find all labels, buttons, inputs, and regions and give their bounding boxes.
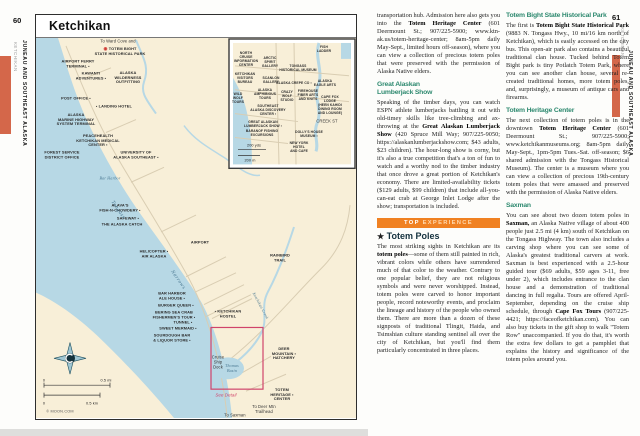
body-paragraph: transportation hub. Admission here also …	[377, 12, 500, 76]
see-detail-label: See Detail	[215, 392, 236, 397]
map-label: BARANOF FISHING EXCURSIONS	[246, 130, 278, 138]
ketchikan-map: Ketchikan	[35, 14, 357, 420]
map-label: KETCHIKAN VISITORS BUREAU	[235, 73, 255, 85]
map-label: GREAT ALASKAN LUMBERJACK SHOW ▪	[244, 121, 282, 129]
map-label: FISH LADDER	[317, 46, 331, 54]
map-label: CAPE FOX LODGE (HEEN KAHIDI DINING ROOM …	[318, 96, 342, 116]
sidebar-chapter-left: JUNEAU AND SOUTHEAST ALASKA	[21, 40, 27, 146]
to-deer-mtn-label: To Deer Mtn Trailhead	[252, 405, 275, 415]
map-label: DEER MOUNTAIN ▪ HATCHERY	[272, 347, 296, 361]
map-label: BERING SEA CRAB FISHERMEN'S TOUR ▪	[153, 310, 196, 319]
map-label: 0	[43, 379, 45, 384]
map-label: POST OFFICE ▪	[61, 97, 91, 102]
page-edge-strip	[0, 429, 368, 436]
map-label: SOUTHEAST ALASKA DISCOVERY CENTER ▪	[250, 105, 285, 117]
map-label: 0.5 km	[86, 402, 98, 407]
banner-experience-text: EXPERIENCE	[420, 220, 473, 226]
top-experience-banner: TOP EXPERIENCE	[377, 218, 500, 228]
section-heading: Saxman	[506, 202, 629, 210]
to-ward-cove-label: To Ward Cove and	[100, 40, 135, 45]
tongass-narrows-label: Narrows	[169, 269, 187, 291]
map-label: THE ALASKA CATCH	[102, 223, 143, 228]
map-label: 0.5 mi	[101, 379, 112, 384]
map-label: 200 yds	[247, 144, 261, 149]
map-label: Bar Harbor	[99, 177, 120, 182]
map-label: UNIVERSITY OF ALASKA SOUTHEAST ▪	[113, 150, 158, 159]
map-label: ▪ LANDING HOTEL	[96, 105, 132, 110]
map-label: 200 m	[244, 159, 255, 164]
totem-bight-label: TOTEM BIGHT STATE HISTORICAL PARK	[95, 46, 146, 56]
body-paragraph: You can see about two dozen totem poles …	[506, 212, 629, 364]
body-paragraph: The first is Totem Bight State Historica…	[506, 22, 629, 102]
chapter-tab-left	[0, 56, 11, 134]
map-label: ALASKA MARINE HIGHWAY SYSTEM TERMINAL	[57, 113, 96, 127]
map-credit: © MOON.COM	[46, 410, 74, 415]
map-label: TONGASS HISTORICAL MUSEUM	[279, 65, 316, 73]
map-label: Thomas Basin	[225, 364, 239, 374]
map-label: SOURDOUGH BAR & LIQUOR STORE ▪	[153, 333, 191, 342]
section-heading: Totem Bight State Historical Park	[506, 12, 629, 20]
page-number-left: 60	[13, 16, 21, 25]
map-label: BURGER QUEEN ▪	[158, 304, 194, 309]
map-label: Ketchikan Creek	[251, 292, 269, 320]
map-label: KAWANTI ADVENTURES ▪	[76, 71, 106, 80]
map-label: FIREHOUSE FIBER ARTS AND KNITS	[298, 90, 319, 102]
map-label: AIRPORT FERRY TERMINAL ▪	[62, 59, 95, 68]
text-column-2: Totem Bight State Historical ParkThe fir…	[506, 12, 629, 368]
banner-top-text: TOP	[404, 220, 420, 226]
to-saxman-label: To Saxman	[224, 414, 245, 418]
map-label: CRAZY WOLF STUDIO	[280, 91, 293, 103]
map-label: FOREST SERVICE DISTRICT OFFICE	[44, 150, 79, 159]
map-label: BAR HARBOR ALE HOUSE ▪	[158, 291, 186, 300]
map-label: ALASKA AMPHIBIOUS TOURS	[254, 89, 276, 101]
map-label: ALASKA CREPE CO ▪	[276, 82, 312, 86]
map-label: TOTEM HERITAGE ▪ CENTER	[270, 388, 293, 402]
map-label: PEACEHEALTH KETCHIKAN MEDICAL CENTER ▪	[76, 134, 119, 148]
map-label: NEW YORK HOTEL AND CAFE	[290, 142, 309, 154]
text-column-1: transportation hub. Admission here also …	[377, 12, 500, 359]
map-label: DOLLY'S HOUSE MUSEUM ▪	[295, 131, 323, 139]
body-paragraph: The most striking sights in Ketchikan ar…	[377, 243, 500, 355]
map-label: ALASKA EAGLE ARTS	[314, 80, 336, 88]
sight-heading: ★ Totem Poles	[377, 231, 500, 241]
map-label: CREEK ST	[316, 120, 337, 125]
map-label: SWEET MERMAID ▪	[159, 327, 196, 332]
map-label: AIRPORT	[191, 241, 209, 246]
map-area: To Ward Cove andTOTEM BIGHT STATE HISTOR…	[36, 38, 356, 418]
map-label: NORTH CRUISE INFORMATION CENTER	[234, 52, 258, 68]
map-title: Ketchikan	[36, 15, 356, 38]
map-label: WILD WOLF TOURS	[232, 93, 244, 105]
top-experience-star-icon: ★	[377, 232, 384, 241]
map-label: 0	[43, 402, 45, 407]
map-label: TUNNEL ▪	[174, 321, 193, 326]
section-heading: Great Alaskan Lumberjack Show	[377, 81, 500, 97]
map-label: ARCTIC SPIRIT GALLERY	[262, 57, 278, 69]
map-labels: To Ward Cove andTOTEM BIGHT STATE HISTOR…	[36, 38, 356, 418]
map-label: RAINBIRD TRAIL	[270, 253, 290, 262]
map-label: ▪ KETCHIKAN HOSTEL	[215, 309, 241, 318]
map-label: ALASKA WILDERNESS OUTFITTING	[115, 71, 142, 85]
map-label: HELICOPTER ▪ AIR ALASKA	[140, 249, 169, 258]
body-paragraph: The next collection of totem poles is in…	[506, 117, 629, 197]
cruise-ship-dock-label: Cruise Ship Dock	[212, 356, 224, 371]
section-heading: Totem Heritage Center	[506, 107, 629, 115]
sidebar-section-left: KETCHIKAN	[13, 42, 18, 72]
body-paragraph: Speaking of the timber days, you can wat…	[377, 99, 500, 211]
